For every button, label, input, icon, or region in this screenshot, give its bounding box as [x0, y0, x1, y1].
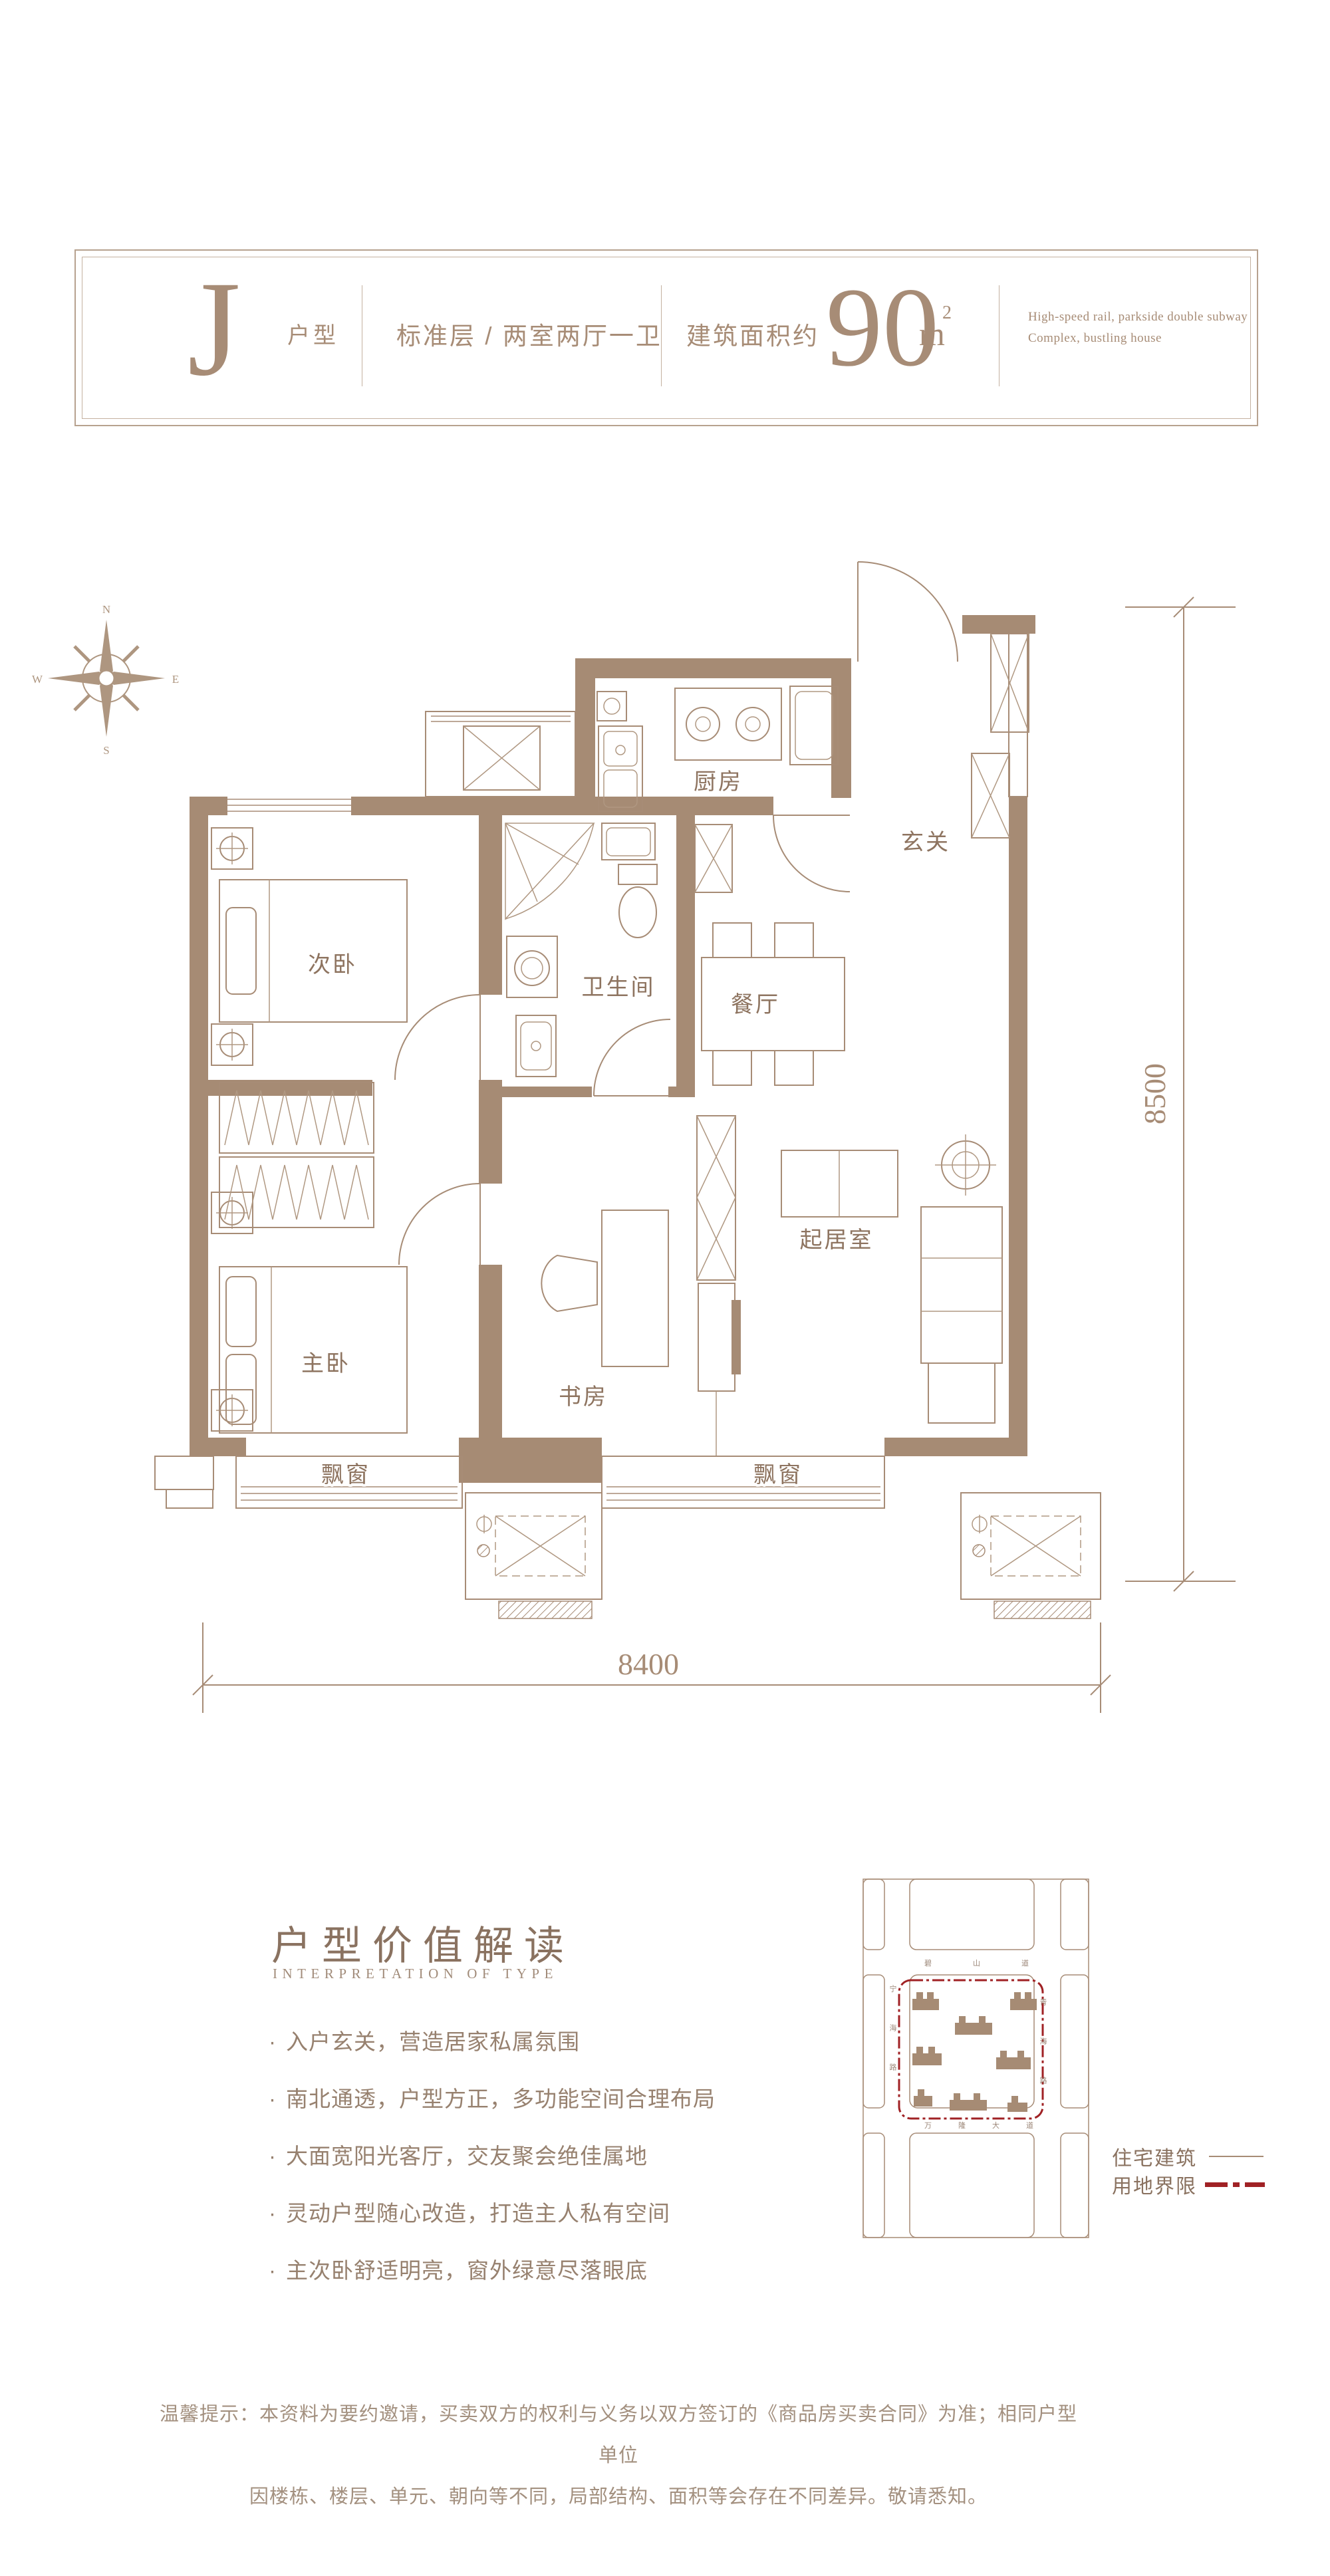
label-master-bedroom: 主卧: [301, 1351, 350, 1376]
header-tagline: High-speed rail, parkside double subway …: [1028, 307, 1248, 349]
unit-type-letter: J: [188, 243, 241, 416]
compass-e: E: [172, 673, 179, 686]
area-prefix: 建筑面积约: [686, 316, 819, 352]
road-top: 碧山道: [924, 1958, 1070, 1968]
header-divider: [362, 285, 362, 386]
floor-plan: 厨房 玄关 次卧 卫生间 餐厅 主卧 书房 起居室 飘窗 飘窗 8500 8: [0, 492, 1330, 1782]
compass-w: W: [32, 673, 43, 686]
value-section-title: 户型价值解读: [271, 1914, 575, 1972]
unit-spec: 标准层 / 两室两厅一卫: [396, 316, 662, 352]
header-box: J 户型 标准层 / 两室两厅一卫 建筑面积约 90 m 2 High-spee…: [74, 249, 1258, 426]
compass-s: S: [103, 744, 109, 757]
area-unit: m: [919, 315, 945, 353]
header-divider: [999, 285, 999, 386]
header-divider: [661, 285, 662, 386]
radiator-icon: [211, 828, 253, 869]
road-right: 青海路: [1039, 1998, 1047, 2116]
dimension-bottom: 8400: [193, 1622, 1111, 1713]
label-entry: 玄关: [901, 830, 950, 855]
label-study: 书房: [559, 1384, 608, 1410]
value-bullet: 主次卧舒适明亮，窗外绿意尽落眼底: [269, 2242, 716, 2299]
value-bullet: 南北通透，户型方正，多功能空间合理布局: [269, 2071, 716, 2128]
tagline-line1: High-speed rail, parkside double subway: [1028, 307, 1248, 328]
site-buildings: [912, 1992, 1037, 2112]
dim-right-value: 8500: [1138, 1063, 1172, 1124]
legend-building-row: 住宅建筑: [1112, 2145, 1265, 2168]
compass-n: N: [102, 603, 110, 616]
road-left: 宁海路: [888, 1984, 897, 2103]
value-bullet-list: 入户玄关，营造居家私属氛围 南北通透，户型方正，多功能空间合理布局 大面宽阳光客…: [269, 2013, 716, 2299]
legend-building-label: 住宅建筑: [1112, 2142, 1202, 2171]
value-section-subtitle: INTERPRETATION OF TYPE: [273, 1966, 558, 1982]
bay-windows: [155, 1456, 1101, 1618]
unit-type-suffix: 户型: [287, 317, 339, 350]
disclaimer-line1: 温馨提示：本资料为要约邀请，买卖双方的权利与义务以双方签订的《商品房买卖合同》为…: [153, 2394, 1084, 2476]
value-bullet: 灵动户型随心改造，打造主人私有空间: [269, 2185, 716, 2242]
legend-boundary-row: 用地界限: [1112, 2173, 1265, 2196]
label-dining: 餐厅: [731, 992, 780, 1017]
legend-boundary-label: 用地界限: [1112, 2170, 1198, 2199]
page: J 户型 标准层 / 两室两厅一卫 建筑面积约 90 m 2 High-spee…: [0, 0, 1330, 2576]
value-bullet: 入户玄关，营造居家私属氛围: [269, 2013, 716, 2071]
room-labels: 厨房 玄关 次卧 卫生间 餐厅 主卧 书房 起居室 飘窗 飘窗: [301, 769, 950, 1487]
dim-bottom-value: 8400: [618, 1647, 679, 1681]
disclaimer: 温馨提示：本资料为要约邀请，买卖双方的权利与义务以双方签订的《商品房买卖合同》为…: [153, 2394, 1084, 2517]
label-bay-window-left: 飘窗: [321, 1462, 370, 1487]
compass-icon: N E S W: [32, 603, 179, 757]
area-unit-sup: 2: [942, 303, 952, 324]
value-bullet: 大面宽阳光客厅，交友聚会绝佳属地: [269, 2128, 716, 2185]
legend-dashdot-line-icon: [1205, 2182, 1265, 2187]
label-second-bedroom: 次卧: [308, 952, 357, 977]
label-bay-window-right: 飘窗: [753, 1462, 803, 1487]
dimension-right: 8500: [1125, 597, 1236, 1591]
label-living: 起居室: [800, 1227, 874, 1253]
label-bathroom: 卫生间: [582, 975, 656, 1000]
radiator-icon: [211, 1024, 253, 1065]
legend-solid-line-icon: [1209, 2156, 1263, 2157]
tagline-line2: Complex, bustling house: [1028, 328, 1248, 349]
label-kitchen: 厨房: [694, 769, 743, 795]
road-bottom: 万隆大道: [924, 2121, 1060, 2130]
disclaimer-line2: 因楼栋、楼层、单元、朝向等不同，局部结构、面积等会存在不同差异。敬请悉知。: [153, 2476, 1084, 2517]
